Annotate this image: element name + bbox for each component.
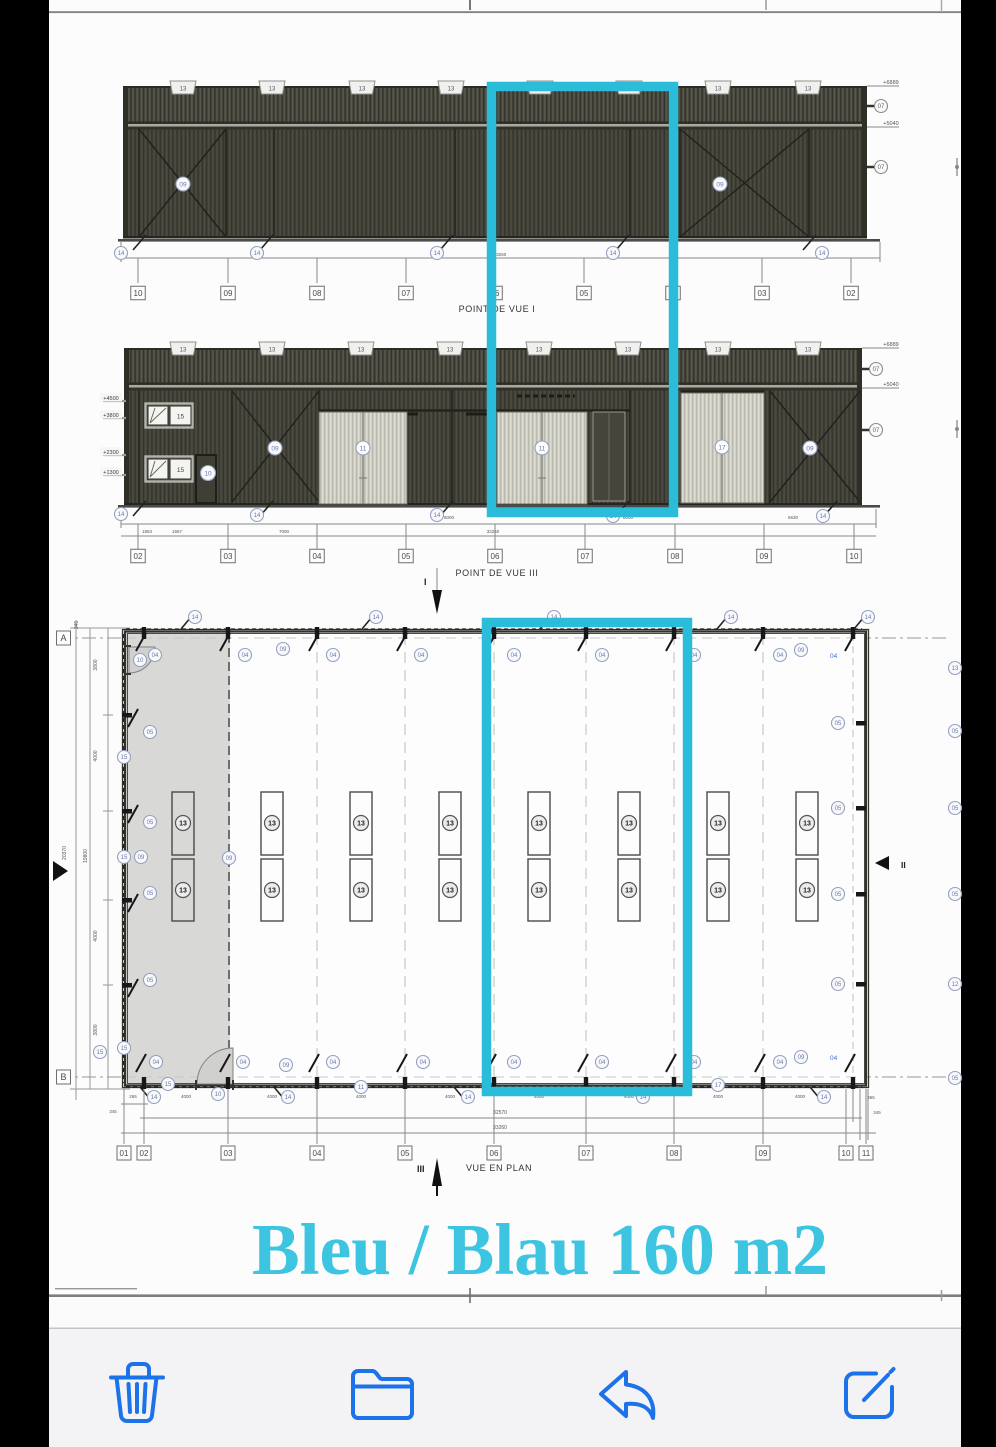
svg-text:05: 05 [835, 806, 842, 812]
svg-text:04: 04 [420, 1060, 427, 1066]
svg-text:17: 17 [718, 444, 726, 451]
svg-text:07: 07 [878, 165, 885, 171]
svg-text:13: 13 [447, 348, 454, 354]
svg-text:4000: 4000 [267, 1094, 278, 1099]
svg-text:33260: 33260 [493, 1125, 507, 1131]
svg-text:04: 04 [777, 653, 784, 659]
svg-text:+4500: +4500 [103, 396, 118, 402]
svg-text:4000: 4000 [445, 1094, 456, 1099]
svg-text:11: 11 [539, 445, 546, 452]
svg-text:05: 05 [952, 1076, 959, 1082]
svg-text:07: 07 [873, 428, 880, 434]
svg-text:II: II [901, 860, 906, 870]
svg-text:13: 13 [715, 87, 722, 93]
svg-text:04: 04 [599, 653, 606, 659]
svg-text:13: 13 [805, 87, 812, 93]
svg-text:POINT DE VUE I: POINT DE VUE I [459, 304, 536, 314]
svg-text:14: 14 [821, 1095, 828, 1101]
svg-text:14: 14 [465, 1095, 472, 1101]
svg-text:13: 13 [803, 821, 811, 828]
svg-text:05: 05 [401, 1149, 410, 1158]
svg-text:19800: 19800 [83, 849, 89, 863]
svg-text:13: 13 [180, 348, 187, 354]
svg-text:09: 09 [716, 181, 724, 188]
svg-text:05: 05 [147, 891, 154, 897]
svg-text:09: 09 [138, 855, 145, 861]
svg-text:10: 10 [842, 1149, 851, 1158]
svg-text:14: 14 [820, 514, 827, 520]
svg-text:03: 03 [224, 552, 233, 561]
svg-text:4000: 4000 [713, 1094, 724, 1099]
svg-text:13: 13 [180, 87, 187, 93]
svg-text:05: 05 [835, 721, 842, 727]
svg-text:14: 14 [118, 512, 125, 518]
svg-text:04: 04 [511, 653, 518, 659]
svg-text:+1300: +1300 [103, 470, 118, 476]
svg-text:09: 09 [179, 181, 187, 188]
svg-text:III: III [417, 1164, 425, 1174]
svg-text:+5040: +5040 [883, 121, 898, 127]
svg-text:09: 09 [271, 445, 279, 452]
svg-text:13: 13 [715, 348, 722, 354]
svg-text:+5040: +5040 [883, 382, 898, 388]
svg-text:13: 13 [268, 821, 276, 828]
svg-text:10: 10 [204, 470, 212, 477]
svg-text:04: 04 [152, 653, 159, 659]
svg-text:09: 09 [280, 647, 287, 653]
svg-text:04: 04 [830, 1055, 838, 1062]
svg-text:14: 14 [610, 251, 617, 257]
svg-text:06: 06 [490, 1149, 499, 1158]
svg-text:8000: 8000 [444, 515, 455, 520]
svg-text:13: 13 [952, 666, 959, 672]
svg-text:13: 13 [805, 348, 812, 354]
svg-text:33260: 33260 [487, 529, 500, 534]
svg-text:09: 09 [760, 552, 769, 561]
svg-text:3800: 3800 [93, 1024, 99, 1035]
svg-text:08: 08 [313, 289, 322, 298]
svg-text:4000: 4000 [181, 1094, 192, 1099]
svg-text:07: 07 [581, 552, 590, 561]
svg-text:14: 14 [865, 615, 872, 621]
svg-text:13: 13 [179, 821, 187, 828]
svg-text:14: 14 [373, 615, 380, 621]
svg-text:04: 04 [153, 1060, 160, 1066]
svg-text:09: 09 [798, 1055, 805, 1061]
svg-text:10: 10 [215, 1092, 222, 1098]
svg-text:07: 07 [582, 1149, 591, 1158]
svg-text:14: 14 [254, 251, 261, 257]
svg-text:12: 12 [952, 982, 959, 988]
svg-text:13: 13 [535, 821, 543, 828]
svg-text:14: 14 [285, 1095, 292, 1101]
svg-text:09: 09 [798, 648, 805, 654]
svg-text:09: 09 [806, 445, 814, 452]
svg-text:+3800: +3800 [103, 413, 118, 419]
svg-text:7000: 7000 [279, 529, 290, 534]
svg-text:I: I [424, 577, 427, 587]
svg-text:15: 15 [165, 1082, 172, 1088]
svg-text:13: 13 [625, 348, 632, 354]
svg-text:6630: 6630 [788, 515, 799, 520]
svg-text:09: 09 [759, 1149, 768, 1158]
svg-text:1863: 1863 [142, 529, 153, 534]
svg-text:05: 05 [147, 820, 154, 826]
svg-text:13: 13 [625, 888, 633, 895]
svg-text:4000: 4000 [93, 750, 99, 761]
svg-text:345: 345 [873, 1110, 881, 1115]
svg-text:11: 11 [862, 1149, 871, 1158]
svg-text:265: 265 [867, 1095, 875, 1100]
svg-text:05: 05 [402, 552, 411, 561]
svg-text:09: 09 [224, 289, 233, 298]
svg-text:13: 13 [536, 348, 543, 354]
svg-text:03: 03 [224, 1149, 233, 1158]
svg-text:A: A [60, 633, 66, 643]
svg-text:+6889: +6889 [883, 80, 898, 86]
svg-text:13: 13 [446, 888, 454, 895]
svg-text:13: 13 [446, 821, 454, 828]
svg-text:3800: 3800 [93, 659, 99, 670]
svg-text:13: 13 [269, 348, 276, 354]
svg-text:04: 04 [313, 1149, 322, 1158]
svg-text:14: 14 [819, 251, 826, 257]
svg-text:07: 07 [873, 367, 880, 373]
svg-text:04: 04 [511, 1060, 518, 1066]
svg-text:4000: 4000 [93, 930, 99, 941]
svg-text:09: 09 [283, 1063, 290, 1069]
svg-text:05: 05 [952, 729, 959, 735]
svg-text:15: 15 [97, 1050, 104, 1056]
svg-text:09: 09 [226, 856, 233, 862]
svg-text:02: 02 [847, 289, 856, 298]
svg-text:13: 13 [357, 821, 365, 828]
svg-text:B: B [60, 1072, 66, 1082]
svg-text:20370: 20370 [62, 846, 68, 860]
svg-text:4000: 4000 [795, 1094, 806, 1099]
svg-text:13: 13 [448, 87, 455, 93]
svg-text:15: 15 [177, 414, 185, 421]
svg-text:13: 13 [714, 888, 722, 895]
svg-text:04: 04 [418, 653, 425, 659]
svg-text:08: 08 [670, 1149, 679, 1158]
svg-text:11: 11 [360, 445, 367, 452]
svg-text:04: 04 [599, 1060, 606, 1066]
svg-text:POINT DE VUE III: POINT DE VUE III [456, 568, 539, 578]
svg-text:VUE EN PLAN: VUE EN PLAN [466, 1163, 532, 1173]
svg-text:+2300: +2300 [103, 450, 118, 456]
svg-text:1667: 1667 [172, 529, 183, 534]
svg-text:05: 05 [580, 289, 589, 298]
svg-text:13: 13 [625, 821, 633, 828]
svg-text:13: 13 [269, 87, 276, 93]
svg-text:13: 13 [803, 888, 811, 895]
svg-text:02: 02 [140, 1149, 149, 1158]
svg-text:06: 06 [491, 552, 500, 561]
svg-text:05: 05 [835, 982, 842, 988]
svg-text:10: 10 [134, 289, 143, 298]
svg-text:14: 14 [434, 251, 441, 257]
svg-text:14: 14 [434, 513, 441, 519]
svg-text:04: 04 [777, 1060, 784, 1066]
svg-text:04: 04 [830, 653, 838, 660]
svg-text:14: 14 [118, 251, 125, 257]
svg-text:13: 13 [268, 888, 276, 895]
svg-text:13: 13 [179, 888, 187, 895]
svg-text:03: 03 [758, 289, 767, 298]
svg-text:14: 14 [151, 1095, 158, 1101]
svg-text:10: 10 [850, 552, 859, 561]
svg-text:13: 13 [714, 821, 722, 828]
svg-text:05: 05 [952, 892, 959, 898]
svg-text:04: 04 [330, 653, 337, 659]
svg-text:Bleu / Blau 160 m2: Bleu / Blau 160 m2 [252, 1209, 828, 1290]
svg-text:14: 14 [254, 513, 261, 519]
svg-text:13: 13 [535, 888, 543, 895]
svg-text:14: 14 [728, 615, 735, 621]
svg-text:4000: 4000 [356, 1094, 367, 1099]
svg-text:13: 13 [358, 348, 365, 354]
svg-text:10: 10 [137, 658, 144, 664]
svg-text:265: 265 [129, 1094, 137, 1099]
svg-text:08: 08 [671, 552, 680, 561]
svg-text:05: 05 [952, 806, 959, 812]
svg-text:04: 04 [313, 552, 322, 561]
svg-text:04: 04 [242, 653, 249, 659]
svg-text:345: 345 [74, 621, 80, 630]
svg-text:15: 15 [177, 467, 185, 474]
svg-text:11: 11 [358, 1085, 365, 1091]
svg-text:15: 15 [121, 855, 128, 861]
svg-text:02: 02 [134, 552, 143, 561]
svg-text:+6889: +6889 [883, 342, 898, 348]
svg-text:14: 14 [192, 615, 199, 621]
svg-text:04: 04 [330, 1060, 337, 1066]
svg-text:17: 17 [715, 1083, 722, 1089]
svg-text:01: 01 [120, 1149, 129, 1158]
svg-text:07: 07 [878, 104, 885, 110]
svg-text:13: 13 [359, 87, 366, 93]
svg-text:04: 04 [240, 1060, 247, 1066]
svg-text:15: 15 [121, 755, 128, 761]
svg-text:07: 07 [402, 289, 411, 298]
svg-text:345: 345 [109, 1109, 117, 1114]
svg-text:05: 05 [835, 892, 842, 898]
svg-text:05: 05 [147, 978, 154, 984]
svg-text:05: 05 [147, 730, 154, 736]
svg-text:13: 13 [357, 888, 365, 895]
svg-text:15: 15 [121, 1046, 128, 1052]
svg-text:32570: 32570 [493, 1110, 507, 1116]
